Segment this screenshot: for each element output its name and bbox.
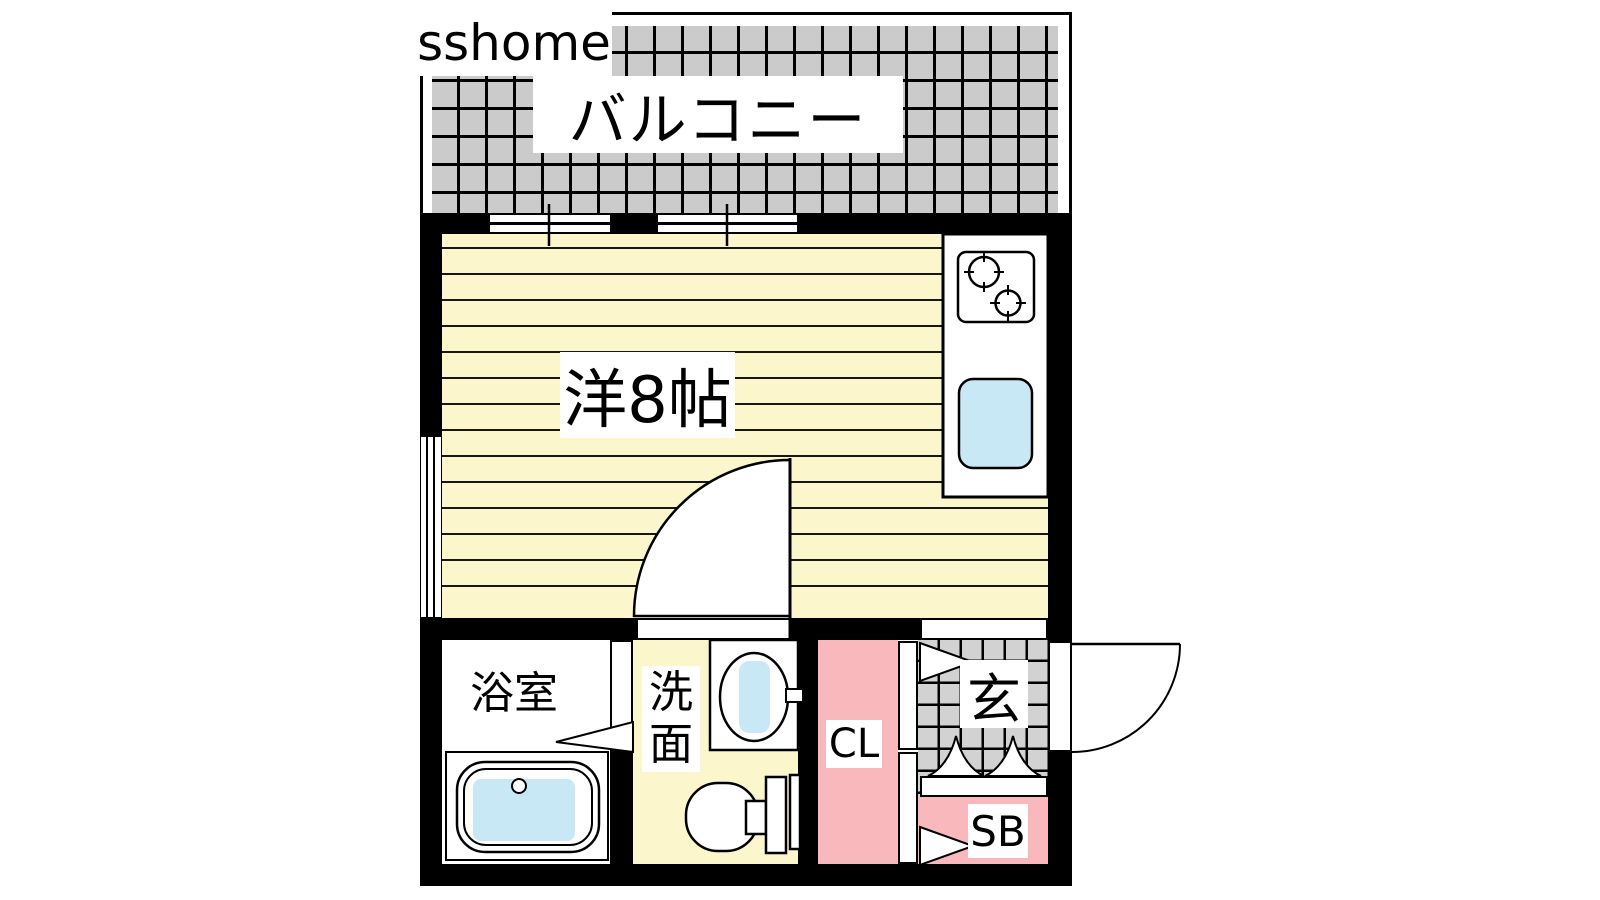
window-top-left bbox=[490, 215, 610, 232]
shoe-box-label: SB bbox=[968, 804, 1028, 858]
closet-label: CL bbox=[826, 720, 882, 768]
wall-bath-partition bbox=[610, 752, 633, 864]
washroom-label-char2: 面 bbox=[649, 719, 693, 771]
entrance-step bbox=[920, 776, 1048, 797]
window-top-right bbox=[658, 215, 797, 232]
wall-bottom bbox=[420, 864, 1072, 886]
window-side bbox=[421, 437, 441, 617]
closet-sliding-panel-top bbox=[898, 641, 918, 750]
floor-plan: sshome バルコニー bbox=[0, 0, 1600, 900]
washroom-label-char1: 洗 bbox=[649, 667, 693, 719]
entrance-door-swing-icon bbox=[1072, 644, 1180, 752]
entrance-label: 玄 bbox=[960, 660, 1028, 728]
balcony-label: バルコニー bbox=[533, 76, 903, 153]
watermark-logo: sshome bbox=[416, 10, 612, 76]
main-room-floor bbox=[442, 234, 1048, 618]
closet-sliding-panel-bottom bbox=[898, 752, 918, 864]
wall-middle-center bbox=[790, 618, 920, 640]
bathroom-door-frame bbox=[610, 640, 633, 752]
bathroom-label: 浴室 bbox=[458, 664, 570, 714]
wall-middle-left bbox=[420, 618, 638, 640]
wall-washroom-closet bbox=[798, 640, 818, 864]
entrance-door-frame bbox=[1048, 641, 1072, 752]
main-door-opening bbox=[638, 618, 790, 640]
entry-opening bbox=[920, 618, 1048, 640]
wall-right bbox=[1048, 213, 1072, 886]
washroom-label: 洗 面 bbox=[642, 666, 700, 772]
main-room-label: 洋8帖 bbox=[560, 352, 735, 438]
